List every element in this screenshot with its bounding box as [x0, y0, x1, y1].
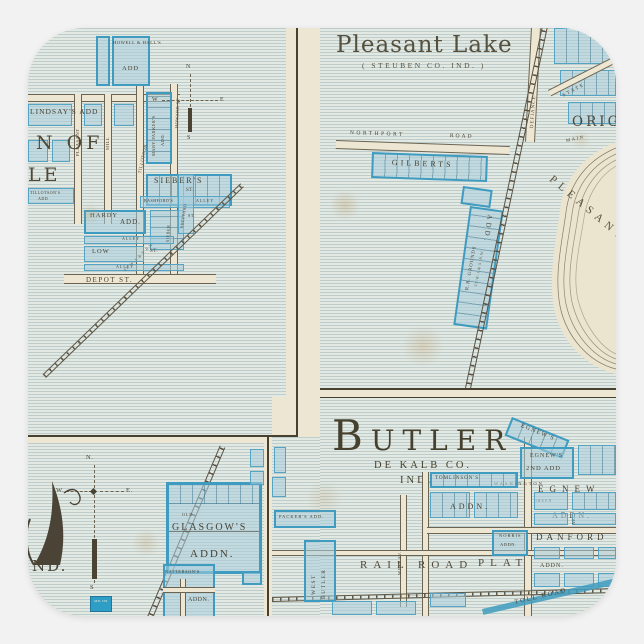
- label-glasgows: GLASGOW'S: [172, 523, 247, 533]
- compass-cross-line: [162, 100, 218, 101]
- label-low: LOW: [92, 249, 110, 256]
- panel-divider-horizontal-right: [320, 388, 616, 390]
- label-howard-st: HOWARD ST: [175, 98, 181, 128]
- map-block-add-jog: [460, 186, 492, 208]
- label-bashfords: BASHFORD'S: [144, 199, 173, 203]
- compass-cross-line: [100, 491, 124, 492]
- map-block: [250, 449, 264, 467]
- label-av: AV.: [572, 517, 577, 525]
- label-battersons: BATTERSON'S: [165, 570, 200, 575]
- map-block: [376, 601, 416, 615]
- label-alley-a: ALLEY: [196, 199, 214, 203]
- map-block: [572, 513, 616, 525]
- pleasant-lake-subtitle: ( STEUBEN CO. IND. ): [362, 62, 486, 70]
- label-butler-v: BUTLER: [322, 569, 328, 599]
- label-packers-add: PACKER'S ADD.: [279, 515, 324, 520]
- map-block: [564, 547, 594, 559]
- panel-butler: BUTLER DE KALB CO. IND. EGNEW'S EGNEW'S …: [272, 397, 616, 616]
- label-hardy-add: ADD.: [120, 219, 141, 226]
- label-depot-st: DEPOT ST.: [86, 277, 133, 284]
- label-egnews: EGNEW'S: [530, 453, 563, 459]
- map-block: [430, 593, 466, 607]
- label-west-av: WEST AV.: [398, 551, 403, 575]
- church-block: M.E. CH.: [90, 596, 112, 612]
- compass-e-label: E.: [126, 488, 133, 495]
- label-town-ind: ND.: [32, 559, 67, 574]
- label-tomlinsons-addn: ADDN.: [450, 503, 490, 511]
- label-old: OLD: [182, 513, 193, 517]
- label-norris-addn: ADDN.: [500, 543, 517, 548]
- map-block: [534, 547, 560, 559]
- map-block-glasgow-step: [242, 571, 262, 585]
- map-block: [272, 477, 286, 497]
- label-low-st: ST.: [150, 249, 158, 254]
- map-block: [578, 445, 616, 475]
- label-sieber-st-v: SIEBER: [166, 225, 171, 243]
- map-block: [534, 573, 560, 587]
- compass-center: [90, 488, 97, 495]
- label-town-name: LE: [28, 166, 61, 185]
- panel-town-southwest: N. W. E. S ND. OLD GLASGOW'S ADDN. BATTE…: [28, 443, 264, 616]
- label-sheppard-st: ST.: [188, 214, 195, 218]
- label-2nd-add: 2ND ADD: [526, 466, 561, 473]
- map-block: [250, 471, 264, 485]
- map-block-west-butler: [304, 540, 336, 602]
- label-howell-add: ADD: [122, 66, 139, 73]
- map-block: [572, 492, 616, 510]
- street: [180, 579, 186, 616]
- label-west: WEST: [312, 574, 318, 595]
- label-mary-add: ADD.: [161, 133, 165, 146]
- butler-title: BUTLER: [332, 415, 513, 457]
- label-plat: PLAT: [478, 558, 528, 569]
- label-mary-parkers: MARY PARKER'S: [152, 115, 156, 156]
- label-rail-road: RAIL ROAD: [360, 560, 473, 571]
- label-hardy: HARDY: [90, 213, 118, 220]
- label-mill-st: MILL: [106, 137, 111, 150]
- map-block-egnews-2nd: [520, 447, 574, 479]
- label-norris: NORRIS: [499, 534, 522, 539]
- butler-county: DE KALB CO.: [374, 461, 472, 472]
- map-block: [598, 547, 616, 559]
- compass-e-label: E: [220, 97, 224, 103]
- label-howell-halls: HOWELL & HALL'S: [113, 41, 161, 46]
- initial-stroke: [34, 481, 63, 565]
- compass-s-label: S: [187, 135, 191, 141]
- label-glasgows-add: ADDN.: [190, 549, 235, 560]
- label-orig-plat: ORIG.: [572, 116, 616, 130]
- map-block: [534, 492, 568, 510]
- label-town-of: N OF: [36, 134, 103, 153]
- panel-town-northwest: N W E S HOWELL & HALL'S ADD LINDSAY'S AD…: [28, 28, 286, 435]
- label-siebers-st: ST.: [186, 188, 194, 193]
- compass-n-label: N: [186, 64, 191, 70]
- map-block: [534, 513, 568, 525]
- street: [104, 94, 112, 224]
- lake-sand: [552, 142, 616, 374]
- map-sticker: N W E S HOWELL & HALL'S ADD LINDSAY'S AD…: [28, 28, 616, 616]
- label-tomlinsons: TOMLINSON'S: [435, 476, 479, 481]
- label-danford: DANFORD: [536, 533, 608, 542]
- pleasant-lake-title: Pleasant Lake: [336, 34, 513, 57]
- panel-divider-vertical-top: [296, 28, 298, 437]
- map-block-mary-parkers: [146, 92, 172, 164]
- panel-divider-horizontal-left: [28, 435, 298, 437]
- compass-n-label: N.: [86, 455, 93, 462]
- panel-pleasant-lake: Pleasant Lake ( STEUBEN CO. IND. ) PLEAS…: [320, 28, 616, 388]
- compass-plume: [188, 108, 192, 132]
- map-block: [274, 447, 286, 473]
- label-pleasant-st: PLEASANT: [76, 129, 81, 156]
- label-northport: NORTHPORT: [350, 131, 405, 138]
- butler-top-rule: [320, 397, 616, 398]
- label-danford-addn: ADDN.: [540, 563, 564, 569]
- label-battersons-add: ADDN.: [188, 597, 209, 603]
- compass-w-label: W: [152, 97, 158, 103]
- compass-plume: [92, 539, 97, 579]
- map-block: [96, 36, 110, 86]
- label-tillotsons-small: TILLOTSON'S: [30, 191, 60, 195]
- label-lindsays-add: LINDSAY'S ADD: [30, 108, 98, 116]
- label-tillotsons-add: ADD: [38, 197, 48, 201]
- label-road: ROAD: [450, 134, 474, 140]
- panel-divider-vertical-bottom: [267, 437, 269, 616]
- lake-shore-graphic: [526, 124, 616, 388]
- label-alley-b: ALLEY: [122, 237, 140, 241]
- initial-flourish: [64, 490, 80, 505]
- map-block: [332, 601, 372, 615]
- street: [163, 587, 215, 593]
- map-block: [114, 104, 134, 126]
- product-background: N W E S HOWELL & HALL'S ADD LINDSAY'S AD…: [0, 0, 644, 644]
- compass-s-label: S: [90, 585, 94, 592]
- glasgow-lots: [169, 485, 259, 504]
- label-siebers: SIEBER'S: [154, 177, 203, 185]
